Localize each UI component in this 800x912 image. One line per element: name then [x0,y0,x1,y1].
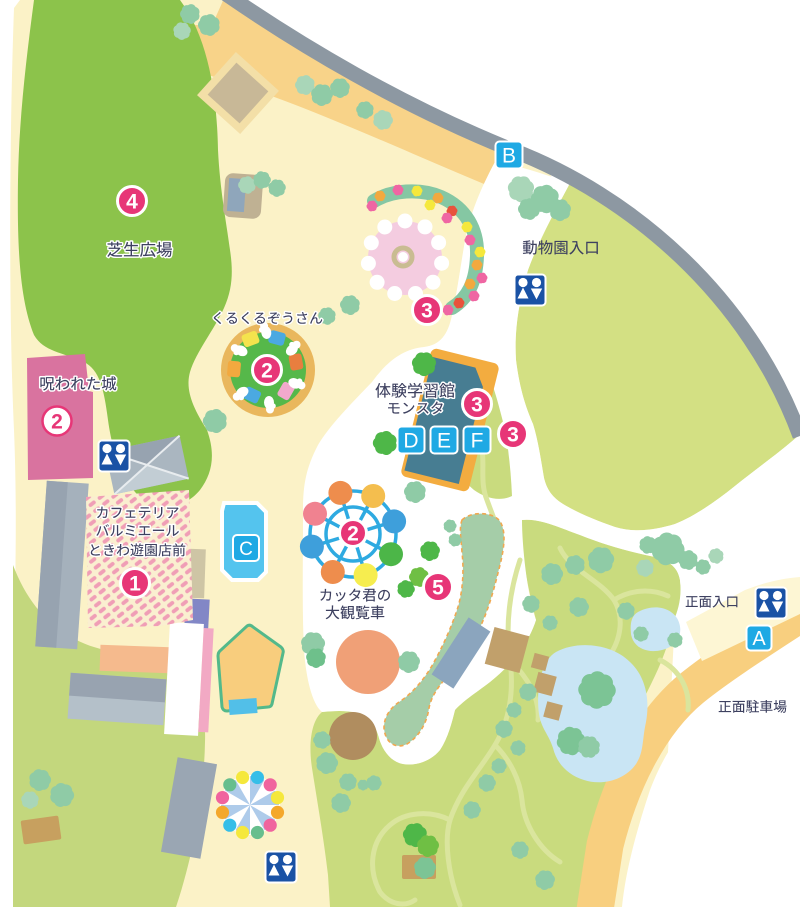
svg-text:2: 2 [261,360,273,383]
svg-text:A: A [752,628,766,650]
svg-text:B: B [502,144,516,167]
svg-text:D: D [403,429,418,452]
svg-text:2: 2 [347,523,359,546]
svg-text:3: 3 [471,394,483,417]
svg-text:5: 5 [432,577,444,600]
svg-text:4: 4 [126,191,138,214]
svg-text:3: 3 [421,300,433,323]
svg-text:1: 1 [129,573,141,596]
svg-text:F: F [471,429,484,452]
svg-text:E: E [437,429,451,452]
svg-text:2: 2 [51,411,63,434]
svg-text:3: 3 [507,424,519,447]
svg-text:C: C [239,539,253,560]
